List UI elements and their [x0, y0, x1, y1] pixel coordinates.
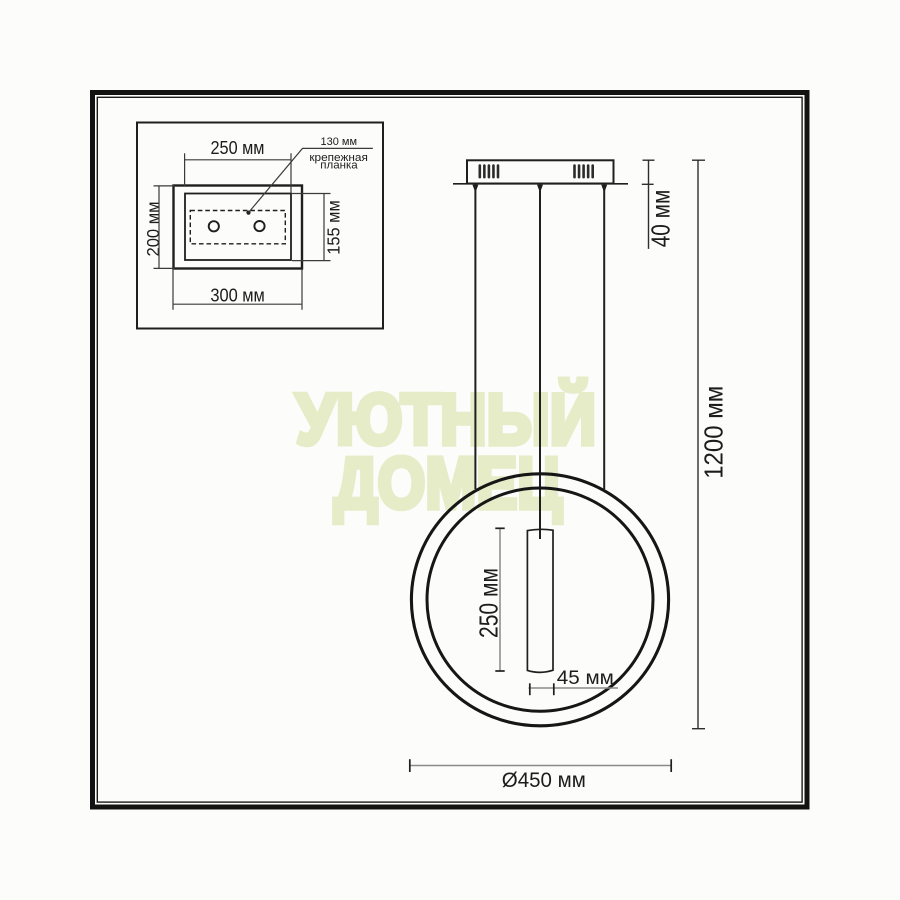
svg-text:300 мм: 300 мм — [210, 284, 265, 305]
svg-text:40 мм: 40 мм — [646, 190, 676, 248]
svg-text:1200 мм: 1200 мм — [698, 386, 728, 479]
svg-text:45 мм: 45 мм — [557, 668, 614, 689]
svg-text:Ø450 мм: Ø450 мм — [502, 768, 586, 792]
svg-text:250 мм: 250 мм — [474, 568, 504, 638]
svg-text:130 мм: 130 мм — [321, 136, 358, 148]
svg-text:200 мм: 200 мм — [143, 202, 163, 257]
svg-text:250 мм: 250 мм — [211, 138, 265, 158]
svg-text:планка: планка — [320, 159, 358, 171]
svg-text:155 мм: 155 мм — [324, 200, 344, 255]
